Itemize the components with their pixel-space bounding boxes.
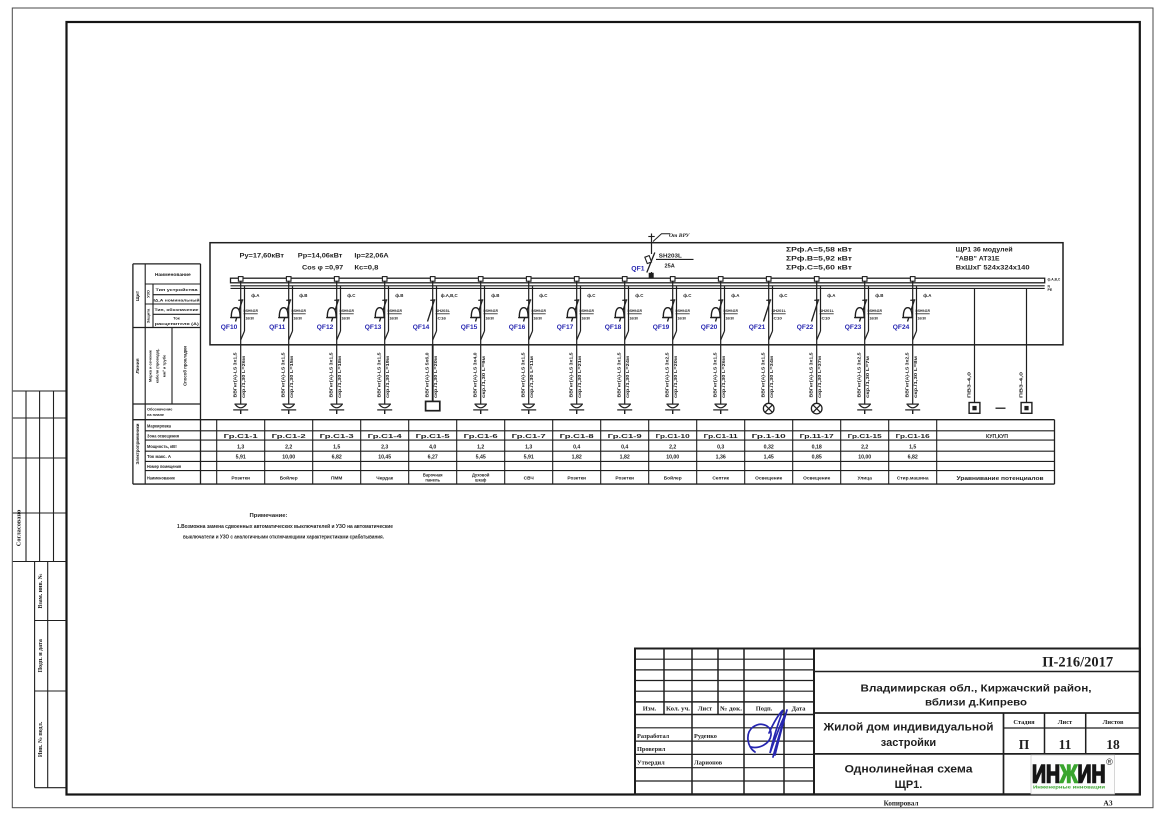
svg-text:Номер помещения: Номер помещения [147, 464, 182, 469]
svg-text:панель: панель [425, 478, 440, 483]
svg-text:ВВГнг(А)-LS 3х1,5: ВВГнг(А)-LS 3х1,5 [520, 352, 525, 398]
svg-text:1,36: 1,36 [716, 455, 726, 461]
svg-text:ВВГнг(А)-LS 3х1,5: ВВГнг(А)-LS 3х1,5 [328, 352, 333, 398]
svg-text:Бойлер: Бойлер [664, 475, 682, 482]
svg-text:Кол. уч.: Кол. уч. [666, 706, 690, 713]
svg-text:скр./1,30 L=8м: скр./1,30 L=8м [913, 356, 918, 398]
svg-text:QF19: QF19 [653, 324, 670, 331]
svg-text:1,45: 1,45 [764, 455, 774, 461]
svg-text:Подп. и дата: Подп. и дата [38, 639, 44, 672]
svg-text:П-216/2017: П-216/2017 [1042, 655, 1113, 671]
svg-text:1,5: 1,5 [333, 444, 340, 450]
svg-text:IΔ,А номинальный: IΔ,А номинальный [154, 297, 201, 302]
svg-text:2,2: 2,2 [861, 444, 868, 450]
svg-text:Освещение: Освещение [755, 476, 783, 482]
svg-text:Разработал: Разработал [637, 733, 670, 740]
svg-text:QF13: QF13 [365, 324, 382, 331]
svg-text:Утвердил: Утвердил [637, 759, 665, 766]
svg-text:скр./1,30 L=7м: скр./1,30 L=7м [865, 356, 870, 398]
svg-text:16/30: 16/30 [246, 316, 255, 321]
svg-text:2,3: 2,3 [381, 444, 388, 450]
svg-text:0,4: 0,4 [621, 444, 628, 450]
svg-text:КУП,КУП: КУП,КУП [986, 434, 1008, 440]
svg-text:1,82: 1,82 [620, 455, 630, 461]
svg-text:ВВГнг(А)-LS 3х1,5: ВВГнг(А)-LS 3х1,5 [280, 352, 285, 398]
svg-text:16/30: 16/30 [486, 316, 495, 321]
svg-text:скр./1,30 L=26м: скр./1,30 L=26м [721, 356, 726, 398]
svg-text:Наименование: Наименование [147, 475, 176, 480]
svg-text:ВВГнг(А)-LS 3х1,5: ВВГнг(А)-LS 3х1,5 [760, 352, 765, 398]
svg-text:QF11: QF11 [269, 324, 285, 331]
svg-text:скр./1,30 L=24м: скр./1,30 L=24м [625, 356, 630, 398]
svg-text:DSH941R: DSH941R [484, 308, 499, 313]
svg-text:Линия: Линия [135, 358, 141, 373]
svg-text:выключатели и УЗО с аналогичны: выключатели и УЗО с аналогичными отключа… [183, 533, 384, 540]
svg-text:DSH941R: DSH941R [628, 308, 643, 313]
svg-text:16/30: 16/30 [918, 316, 927, 321]
svg-text:Взам. инв. №: Взам. инв. № [38, 573, 44, 608]
svg-text:Щит: Щит [135, 290, 141, 301]
svg-text:А3: А3 [1103, 799, 1112, 808]
svg-text:ВВГнг(А)-LS 3х1,5: ВВГнг(А)-LS 3х1,5 [616, 352, 621, 398]
svg-text:Уравнивание потенциалов: Уравнивание потенциалов [957, 476, 1044, 482]
svg-text:Розетки: Розетки [231, 476, 250, 482]
svg-text:ВВГнг(А)-LS 3х2,5: ВВГнг(А)-LS 3х2,5 [856, 352, 861, 398]
svg-text:ф.А: ф.А [827, 293, 836, 298]
svg-text:Согласовано: Согласовано [16, 510, 23, 547]
svg-text:10,00: 10,00 [666, 455, 679, 461]
svg-text:ф.С: ф.С [347, 293, 356, 298]
svg-text:Ток макс. А: Ток макс. А [147, 454, 171, 459]
svg-text:Рр=14,06кВт: Рр=14,06кВт [298, 252, 343, 259]
svg-text:1,3: 1,3 [237, 444, 244, 450]
svg-text:Cos φ =0,97: Cos φ =0,97 [302, 264, 344, 271]
svg-text:0,4: 0,4 [573, 444, 580, 450]
svg-text:QF12: QF12 [317, 324, 334, 331]
svg-text:скр./1,30 L=18м: скр./1,30 L=18м [337, 356, 342, 398]
svg-text:DSH941R: DSH941R [244, 308, 259, 313]
svg-text:Однолинейная схема: Однолинейная схема [845, 764, 974, 776]
svg-text:SH203L: SH203L [436, 308, 451, 313]
svg-text:УЗО: УЗО [145, 290, 150, 298]
svg-text:скр./1,30 L=9м: скр./1,30 L=9м [481, 356, 486, 398]
svg-text:2,2: 2,2 [285, 444, 292, 450]
svg-text:скр./1,30 L=11м: скр./1,30 L=11м [529, 356, 534, 398]
svg-text:Мощность, кВт: Мощность, кВт [147, 444, 177, 449]
svg-text:Наименование: Наименование [155, 272, 191, 278]
svg-text:ВВГнг(А)-LS 3х1,5: ВВГнг(А)-LS 3х1,5 [808, 352, 813, 398]
svg-text:шкаф: шкаф [475, 478, 487, 483]
svg-text:16/30: 16/30 [870, 316, 879, 321]
svg-text:Септик: Септик [712, 476, 729, 482]
svg-text:DSH941R: DSH941R [292, 308, 307, 313]
svg-text:Изм.: Изм. [643, 706, 657, 713]
svg-text:SH203L: SH203L [659, 254, 683, 260]
svg-text:Гр.С1-10: Гр.С1-10 [656, 434, 690, 440]
svg-text:Розетки: Розетки [567, 476, 586, 482]
svg-text:застройки: застройки [881, 737, 936, 749]
svg-text:Гр.С1-16: Гр.С1-16 [896, 434, 930, 440]
svg-text:16/30: 16/30 [582, 316, 591, 321]
svg-text:25А: 25А [665, 264, 675, 270]
svg-text:DSH941R: DSH941R [388, 308, 403, 313]
svg-text:DSH941R: DSH941R [340, 308, 355, 313]
svg-text:2,2: 2,2 [669, 444, 676, 450]
svg-text:ВВГнг(А)-LS 3х2,5: ВВГнг(А)-LS 3х2,5 [904, 352, 909, 398]
svg-text:Ларионов: Ларионов [694, 759, 723, 766]
svg-text:DSH941R: DSH941R [868, 308, 883, 313]
svg-text:ф.С: ф.С [587, 293, 596, 298]
svg-text:Стадия: Стадия [1013, 719, 1035, 726]
svg-text:ΣРф.С=5,60 кВт: ΣРф.С=5,60 кВт [786, 265, 852, 272]
svg-text:Гр.С1-2: Гр.С1-2 [272, 434, 306, 440]
svg-text:скр./1,30 L=19м: скр./1,30 L=19м [385, 356, 390, 398]
svg-text:Электроприемники: Электроприемники [135, 423, 140, 464]
svg-text:Инв. № подл.: Инв. № подл. [38, 721, 44, 757]
svg-text:Примечание:: Примечание: [250, 513, 288, 519]
svg-text:Подп.: Подп. [756, 706, 773, 713]
svg-text:5,91: 5,91 [236, 455, 246, 461]
svg-text:0,3: 0,3 [717, 444, 724, 450]
svg-text:Гр.1-10: Гр.1-10 [752, 434, 786, 440]
svg-text:QF10: QF10 [221, 324, 238, 331]
svg-text:Гр.С1-7: Гр.С1-7 [512, 434, 546, 440]
svg-text:Марка и сечение: Марка и сечение [148, 349, 153, 382]
svg-text:Гр.С1-15: Гр.С1-15 [848, 434, 882, 440]
svg-text:QF17: QF17 [557, 324, 574, 331]
svg-text:Зона освещения: Зона освещения [147, 434, 180, 439]
svg-text:ф.А,В,С: ф.А,В,С [1048, 278, 1061, 282]
svg-text:ф.С: ф.С [539, 293, 548, 298]
svg-text:0,32: 0,32 [764, 444, 774, 450]
svg-text:10,00: 10,00 [858, 455, 871, 461]
svg-text:QF24: QF24 [893, 324, 910, 331]
svg-text:1,82: 1,82 [572, 455, 582, 461]
svg-text:C16: C16 [438, 316, 447, 321]
svg-text:QF16: QF16 [509, 324, 526, 331]
svg-text:Лист: Лист [698, 706, 713, 713]
svg-text:Гр.С1-8: Гр.С1-8 [560, 434, 594, 440]
svg-text:Кс=0,8: Кс=0,8 [354, 264, 379, 271]
svg-text:ф.А: ф.А [923, 293, 932, 298]
svg-text:Чердак: Чердак [376, 476, 394, 482]
svg-text:скр./1,30 L=20м: скр./1,30 L=20м [673, 356, 678, 398]
svg-text:ф.С: ф.С [779, 293, 788, 298]
svg-text:"АВВ" АТ31Е: "АВВ" АТ31Е [956, 257, 1000, 263]
svg-text:C10: C10 [822, 316, 831, 321]
svg-text:16/30: 16/30 [294, 316, 303, 321]
svg-text:ПММ: ПММ [331, 476, 342, 482]
svg-text:1,5: 1,5 [909, 444, 916, 450]
svg-text:От ВРУ: От ВРУ [669, 233, 691, 239]
svg-text:Стир.машина: Стир.машина [897, 476, 929, 482]
svg-text:ф.А: ф.А [731, 293, 740, 298]
svg-text:ф.А,В,С: ф.А,В,С [441, 293, 459, 298]
svg-text:Ток: Ток [173, 316, 180, 321]
svg-text:Улица: Улица [858, 476, 873, 482]
svg-text:Освещение: Освещение [803, 476, 831, 482]
svg-text:Тип устройства: Тип устройства [156, 287, 199, 292]
svg-text:ф.С: ф.С [683, 293, 692, 298]
svg-text:5,91: 5,91 [524, 455, 534, 461]
svg-text:16/30: 16/30 [726, 316, 735, 321]
svg-text:Гр.С1-3: Гр.С1-3 [320, 434, 354, 440]
svg-text:№ док.: № док. [720, 706, 742, 713]
svg-text:Маркировка: Маркировка [147, 424, 172, 429]
svg-text:Листов: Листов [1103, 719, 1124, 726]
svg-text:10,45: 10,45 [378, 455, 391, 461]
svg-text:0,85: 0,85 [812, 455, 822, 461]
svg-text:18: 18 [1106, 737, 1120, 752]
svg-text:Обозначение: Обозначение [147, 407, 173, 412]
svg-text:6,27: 6,27 [428, 455, 438, 461]
svg-text:ф.В: ф.В [299, 293, 307, 298]
svg-text:скр./1,30 L=34м: скр./1,30 L=34м [769, 356, 774, 398]
svg-text:ЩР1 36 модулей: ЩР1 36 модулей [956, 247, 1013, 254]
svg-text:скр./1,30 L=21м: скр./1,30 L=21м [577, 356, 582, 398]
svg-text:ВхШхГ 524х324х140: ВхШхГ 524х324х140 [956, 266, 1031, 272]
svg-text:ΣРф.А=5,58 кВт: ΣРф.А=5,58 кВт [786, 247, 852, 254]
svg-text:1,3: 1,3 [525, 444, 532, 450]
svg-text:ВВГнг(А)-LS 3х2,5: ВВГнг(А)-LS 3х2,5 [664, 352, 669, 398]
svg-text:QF14: QF14 [413, 324, 430, 331]
svg-text:16/30: 16/30 [534, 316, 543, 321]
svg-text:C10: C10 [774, 316, 783, 321]
svg-text:QF20: QF20 [701, 324, 718, 331]
svg-text:Лист: Лист [1058, 719, 1073, 726]
svg-text:PE: PE [1048, 288, 1053, 292]
svg-text:ВВГнг(А)-LS 3х1,5: ВВГнг(А)-LS 3х1,5 [568, 352, 573, 398]
svg-text:DSH941R: DSH941R [580, 308, 595, 313]
svg-text:QF1: QF1 [631, 265, 644, 272]
svg-text:0,18: 0,18 [812, 444, 822, 450]
svg-text:Iр=22,06А: Iр=22,06А [354, 252, 389, 259]
svg-text:ВВГнг(А)-LS 5х6,0: ВВГнг(А)-LS 5х6,0 [424, 352, 429, 398]
svg-text:кабеля (провода),: кабеля (провода), [155, 349, 160, 384]
svg-text:QF21: QF21 [749, 324, 766, 331]
svg-text:ВВГнг(А)-LS 3х1,5: ВВГнг(А)-LS 3х1,5 [232, 352, 237, 398]
svg-text:Ру=17,60кВт: Ру=17,60кВт [240, 252, 285, 259]
svg-text:П: П [1019, 737, 1030, 752]
svg-text:10,00: 10,00 [282, 455, 295, 461]
svg-text:Гр.С1-9: Гр.С1-9 [608, 434, 642, 440]
svg-text:Способ прокладки: Способ прокладки [183, 346, 188, 386]
svg-text:Гр.С1-5: Гр.С1-5 [416, 434, 450, 440]
svg-text:®: ® [1106, 757, 1113, 767]
svg-text:Инженерные инновации: Инженерные инновации [1033, 785, 1105, 790]
svg-text:16/30: 16/30 [390, 316, 399, 321]
svg-text:ВВГнг(А)-LS 3х1,5: ВВГнг(А)-LS 3х1,5 [712, 352, 717, 398]
svg-text:ПВ3-4,0: ПВ3-4,0 [1019, 371, 1024, 398]
svg-text:QF22: QF22 [797, 324, 814, 331]
svg-text:ЩР1.: ЩР1. [895, 779, 923, 791]
svg-text:скр./1,30 L=37м: скр./1,30 L=37м [817, 356, 822, 398]
svg-text:СВЧ: СВЧ [524, 476, 535, 482]
svg-text:ф.А: ф.А [251, 293, 260, 298]
svg-text:Проверил: Проверил [637, 746, 666, 753]
svg-text:6,82: 6,82 [332, 455, 342, 461]
svg-text:DSH941R: DSH941R [676, 308, 691, 313]
svg-text:Гр.С1-11: Гр.С1-11 [704, 434, 738, 440]
svg-text:Гр.С1-4: Гр.С1-4 [368, 434, 402, 440]
svg-text:6,82: 6,82 [908, 455, 918, 461]
svg-text:скр./1,30 L=15м: скр./1,30 L=15м [289, 356, 294, 398]
svg-text:на плане: на плане [147, 412, 165, 417]
svg-text:скр./1,30 L=20м: скр./1,30 L=20м [433, 356, 438, 398]
svg-text:16/30: 16/30 [342, 316, 351, 321]
svg-text:Владимирская обл., Киржачский: Владимирская обл., Киржачский район, [861, 683, 1092, 695]
svg-text:ПВ3-4,0: ПВ3-4,0 [967, 371, 972, 398]
svg-text:ВВГнг(А)-LS 3х1,5: ВВГнг(А)-LS 3х1,5 [376, 352, 381, 398]
svg-text:скр./1,30 L=26м: скр./1,30 L=26м [241, 356, 246, 398]
svg-text:Гр.С1-6: Гр.С1-6 [464, 434, 498, 440]
svg-text:SH201L: SH201L [772, 308, 787, 313]
svg-text:Тип, обозначение: Тип, обозначение [155, 307, 200, 312]
svg-text:5,45: 5,45 [476, 455, 486, 461]
svg-text:16/30: 16/30 [678, 316, 687, 321]
svg-text:ф.С: ф.С [635, 293, 644, 298]
svg-text:ВВГнг(А)-LS 3х4,0: ВВГнг(А)-LS 3х4,0 [472, 352, 477, 398]
svg-text:Копировал: Копировал [884, 800, 919, 808]
svg-text:Дата: Дата [792, 706, 807, 713]
svg-text:Защита: Защита [145, 308, 150, 323]
svg-text:Бойлер: Бойлер [280, 475, 298, 482]
svg-text:QF23: QF23 [845, 324, 862, 331]
svg-text:расцепителя (А): расцепителя (А) [155, 321, 200, 326]
svg-text:Руденко: Руденко [694, 733, 717, 740]
svg-text:ф.В: ф.В [875, 293, 883, 298]
svg-text:DSH941R: DSH941R [916, 308, 931, 313]
svg-text:мм² и трубе: мм² и трубе [161, 354, 166, 377]
svg-text:1,2: 1,2 [477, 444, 484, 450]
svg-text:Розетки: Розетки [615, 476, 634, 482]
svg-text:SH201L: SH201L [820, 308, 835, 313]
svg-text:Гр.11-17: Гр.11-17 [800, 434, 834, 440]
svg-text:QF18: QF18 [605, 324, 622, 331]
svg-text:4,0: 4,0 [429, 444, 436, 450]
svg-text:16/30: 16/30 [630, 316, 639, 321]
svg-text:вблизи д.Кипрево: вблизи д.Кипрево [925, 697, 1027, 709]
svg-text:DSH941R: DSH941R [724, 308, 739, 313]
svg-text:1.Возможна замена сдвоенных ав: 1.Возможна замена сдвоенных автоматическ… [177, 523, 393, 530]
svg-text:ф.В: ф.В [395, 293, 403, 298]
svg-text:Жилой дом индивидуальной: Жилой дом индивидуальной [822, 722, 993, 734]
svg-text:Гр.С1-1: Гр.С1-1 [224, 434, 258, 440]
svg-text:QF15: QF15 [461, 324, 478, 331]
svg-text:ф.В: ф.В [491, 293, 499, 298]
svg-text:ΣРф.В=5,92 кВт: ΣРф.В=5,92 кВт [786, 256, 852, 263]
svg-text:DSH941R: DSH941R [532, 308, 547, 313]
svg-text:11: 11 [1059, 737, 1072, 752]
